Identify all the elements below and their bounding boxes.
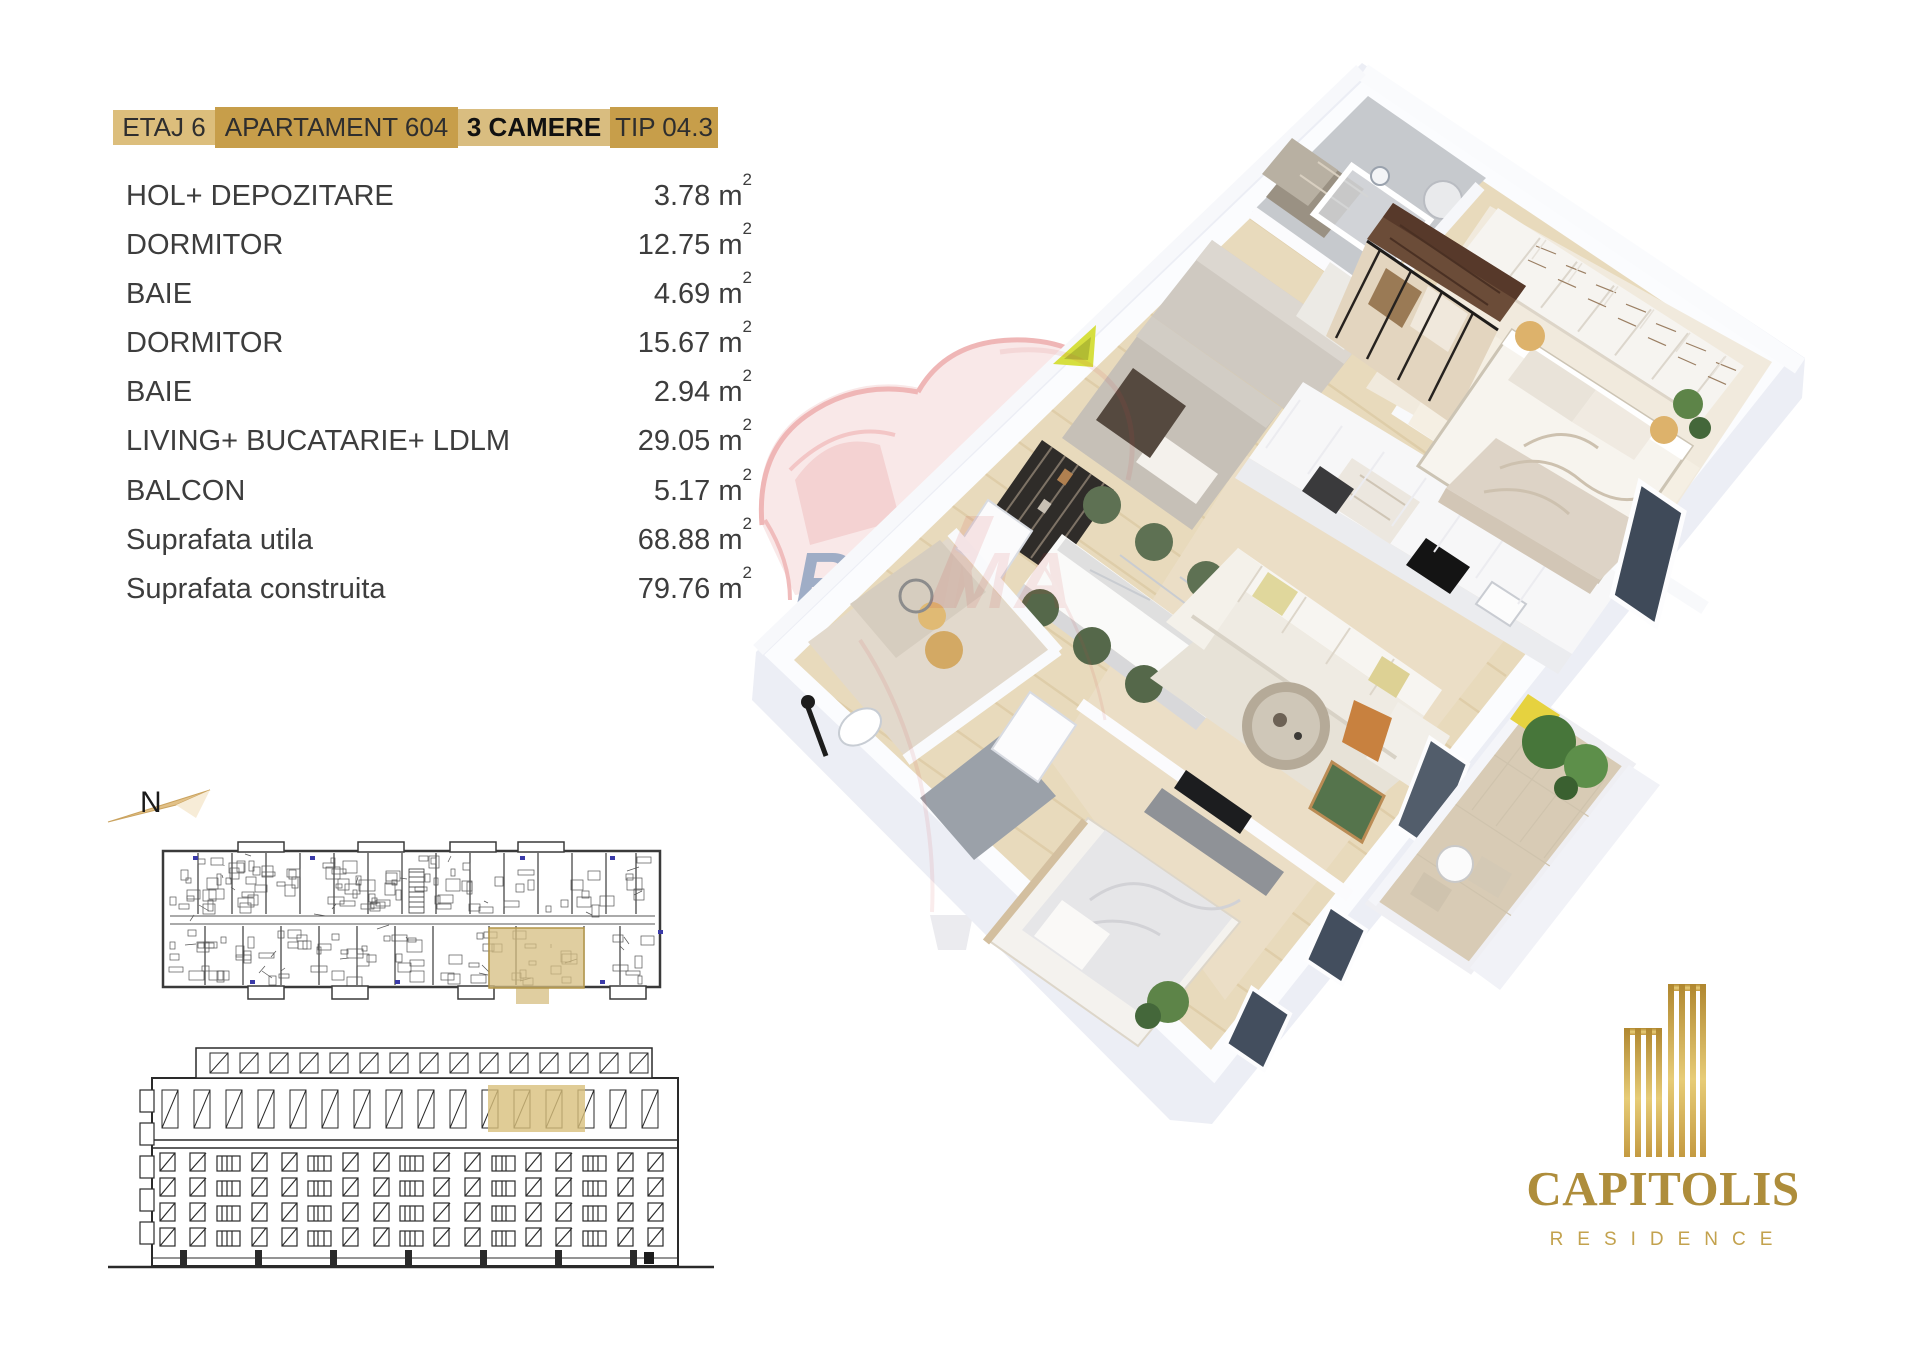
svg-text:CAPITOLIS: CAPITOLIS [1526,1161,1799,1216]
svg-text:MA: MA [942,536,1078,625]
svg-text:N: N [140,786,162,819]
svg-text:RESIDENCE: RESIDENCE [1550,1229,1787,1250]
